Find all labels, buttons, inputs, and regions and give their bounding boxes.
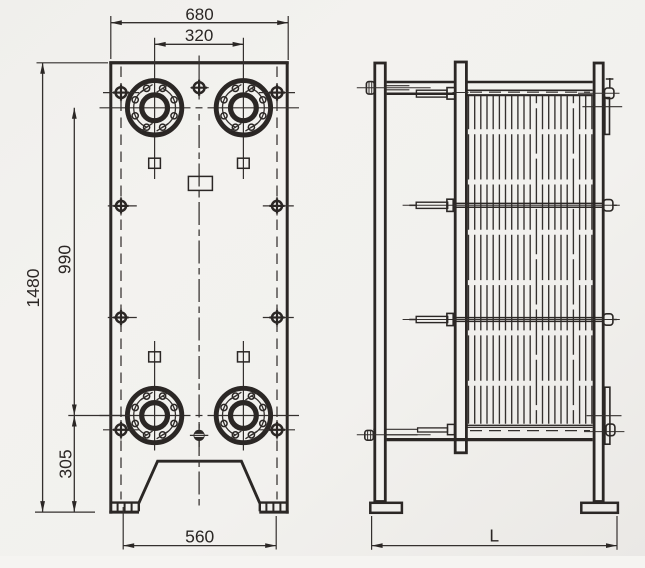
svg-text:560: 560 — [185, 526, 214, 546]
svg-text:L: L — [489, 526, 499, 546]
svg-text:1480: 1480 — [23, 268, 43, 307]
svg-text:305: 305 — [56, 449, 76, 478]
svg-text:990: 990 — [55, 245, 75, 274]
svg-text:320: 320 — [185, 26, 213, 45]
svg-text:680: 680 — [185, 5, 213, 24]
